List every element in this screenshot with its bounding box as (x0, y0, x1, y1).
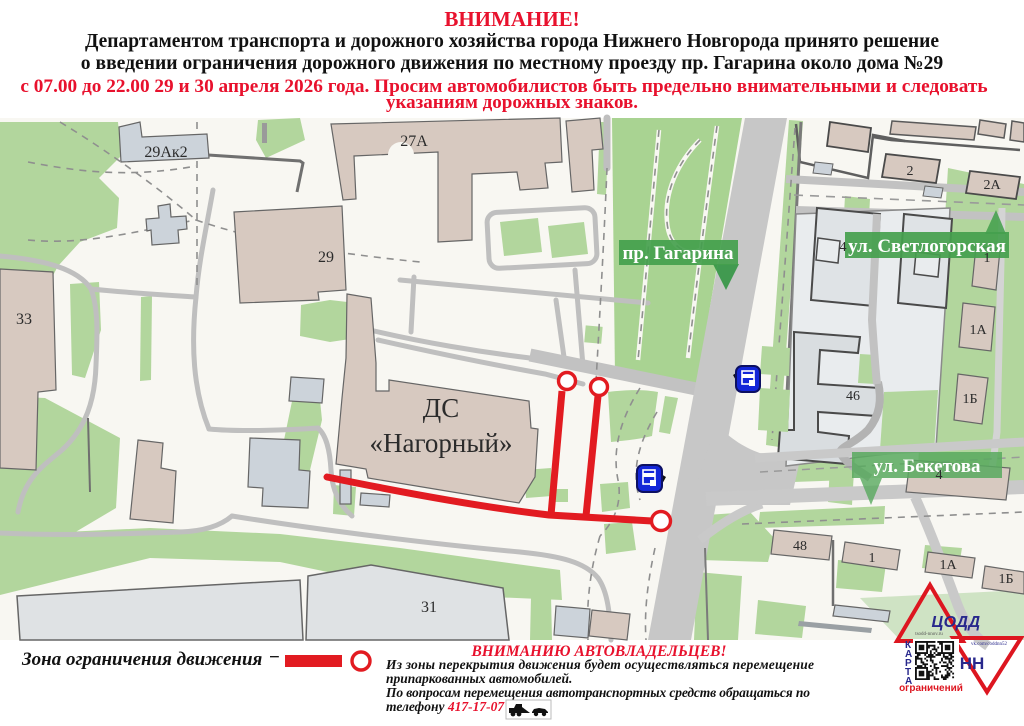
svg-text:ул. Светлогорская: ул. Светлогорская (848, 236, 1006, 257)
svg-text:31: 31 (421, 599, 437, 616)
svg-text:33: 33 (16, 311, 32, 328)
svg-text:По вопросам перемещения автотр: По вопросам перемещения автотранспортных… (385, 685, 810, 700)
svg-text:ул. Бекетова: ул. Бекетова (874, 456, 981, 477)
svg-text:1А: 1А (939, 558, 957, 573)
svg-text:vk.com/coddnn52: vk.com/coddnn52 (971, 642, 1007, 647)
svg-text:НН: НН (960, 654, 985, 673)
svg-text:29: 29 (318, 249, 334, 266)
svg-text:−: − (269, 647, 280, 668)
svg-text:1Б: 1Б (962, 392, 977, 407)
svg-text:2: 2 (907, 164, 914, 179)
svg-text:1Б: 1Б (998, 572, 1013, 587)
svg-text:ЦОДД: ЦОДД (931, 614, 980, 631)
svg-text:4: 4 (840, 240, 847, 255)
svg-text:1: 1 (984, 251, 991, 266)
svg-text:телефону 417-17-07: телефону 417-17-07 (386, 699, 505, 714)
svg-text:Зона ограничения движения: Зона ограничения движения (21, 649, 263, 670)
svg-text:Из зоны перекрытия движения бу: Из зоны перекрытия движения будет осущес… (385, 657, 814, 672)
svg-text:27А: 27А (400, 133, 428, 150)
svg-text:припаркованных автомобилей.: припаркованных автомобилей. (386, 671, 572, 686)
svg-text:1А: 1А (969, 323, 987, 338)
svg-text:29Ак2: 29Ак2 (144, 144, 187, 161)
svg-text:1: 1 (869, 551, 876, 566)
svg-text:«Нагорный»: «Нагорный» (370, 428, 513, 458)
svg-text:пр. Гагарина: пр. Гагарина (622, 243, 734, 264)
svg-text:2А: 2А (983, 178, 1001, 193)
svg-text:46: 46 (846, 389, 860, 404)
svg-text:КАРТА: КАРТА (905, 640, 912, 687)
svg-text:ДС: ДС (423, 393, 459, 423)
svg-text:tsodd-nnov.ru: tsodd-nnov.ru (915, 632, 943, 637)
svg-text:48: 48 (793, 539, 807, 554)
svg-text:4: 4 (936, 468, 943, 483)
